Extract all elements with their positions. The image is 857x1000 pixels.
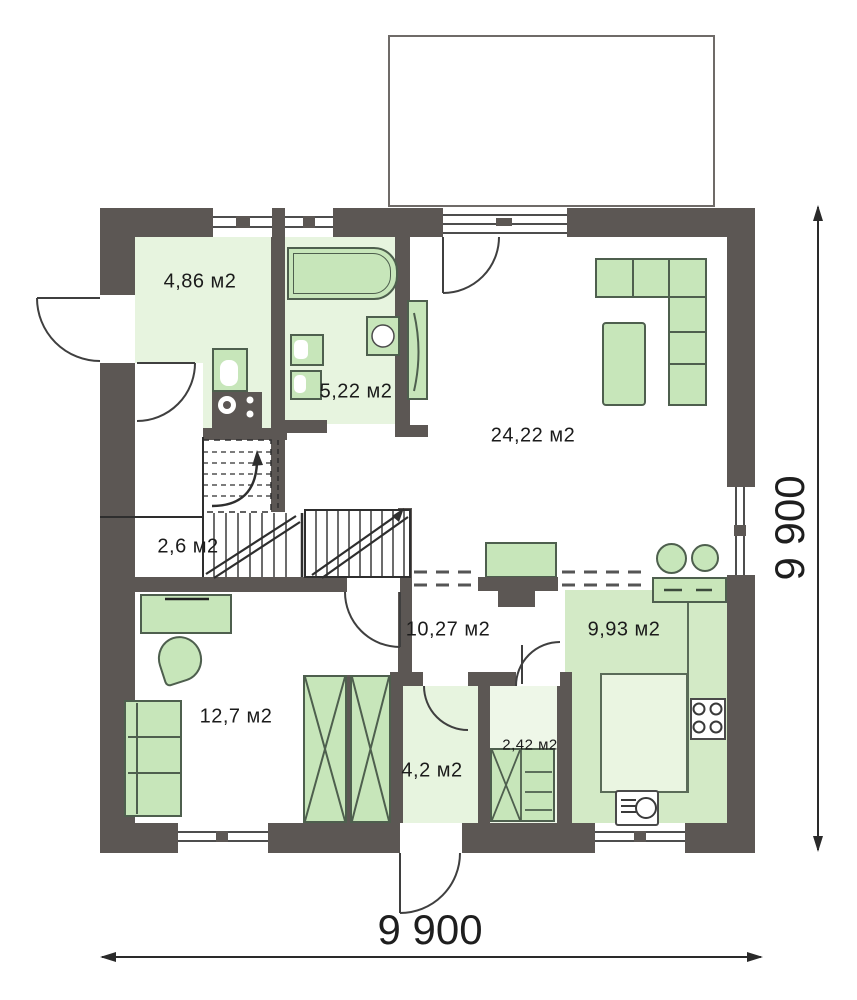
floor-plan: 4,86 м2 5,22 м2 24,22 м2 2,6 м2 10,27 м2… [0, 0, 857, 1000]
room-label-bedroom: 12,7 м2 [200, 706, 273, 729]
kitchen-sink-1 [656, 543, 687, 574]
kitchen-sink-2 [691, 544, 719, 572]
fireplace [485, 542, 557, 578]
dimension-width: 9 900 [377, 906, 482, 954]
room-label-entry: 4,2 м2 [401, 760, 462, 783]
room-label-hall: 10,27 м2 [406, 619, 490, 642]
room-label-stairs: 2,6 м2 [157, 536, 218, 559]
room-label-kitchen: 9,93 м2 [588, 619, 661, 642]
plan-linework [0, 0, 857, 1000]
fireplace-stem [498, 591, 535, 607]
room-label-bathroom: 5,22 м2 [320, 381, 393, 404]
room-label-living: 24,22 м2 [491, 425, 575, 448]
room-label-closet: 2,42 м2 [502, 737, 558, 754]
room-label-tambour: 4,86 м2 [164, 271, 237, 294]
fireplace-base [478, 577, 558, 591]
dimension-height: 9 900 [766, 475, 814, 580]
